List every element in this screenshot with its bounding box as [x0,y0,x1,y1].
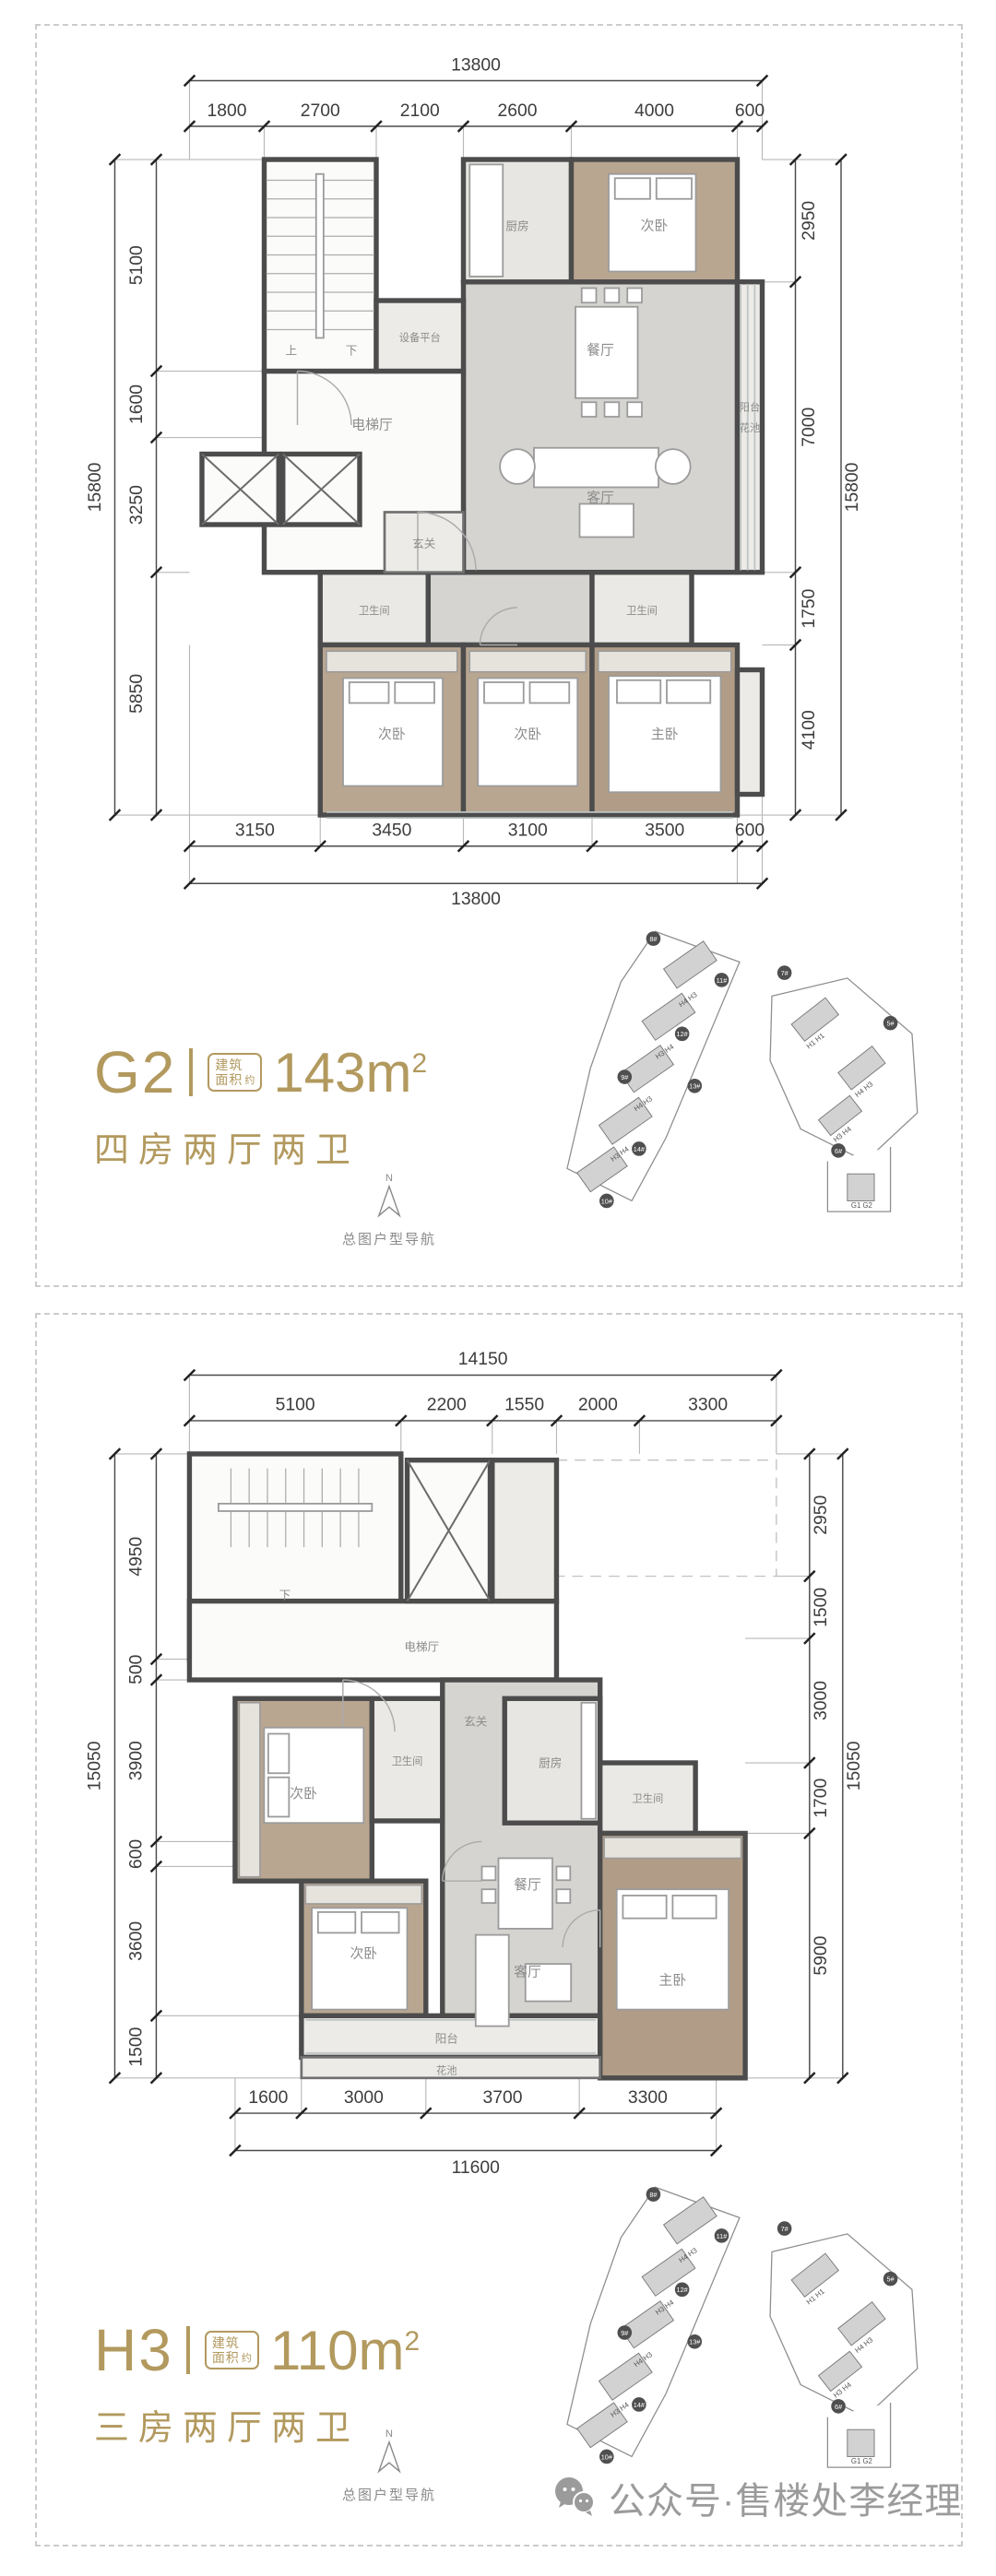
building-badge: 7# [781,969,789,977]
building-badge: 9# [621,1073,629,1081]
unit-code: H3 [94,2316,173,2384]
room-label-bath-right: 卫生间 [633,1792,664,1805]
title-divider [189,1048,193,1096]
building-badge: 7# [781,2225,789,2233]
dim-left-seg-5: 1500 [127,2027,147,2067]
room-label-elevator-hall: 电梯厅 [404,1641,439,1654]
room-label-bedroom-mid: 次卧 [514,727,541,742]
room-label-living: 客厅 [587,490,614,505]
building-badge: 13# [689,1082,701,1091]
dim-right-seg-0: 2950 [812,1495,831,1535]
site-plan-map: 8# 11# 7# 12# 9# 13# 5# 14# 10# 6# H4 H3… [531,922,944,1235]
area-badge-line1: 建筑 [212,2335,240,2350]
room-label-dining: 餐厅 [514,1877,541,1893]
dim-right-seg-1: 1500 [812,1588,831,1627]
dim-right-seg-2: 1750 [799,589,819,629]
dim-top-seg-5: 600 [735,100,765,121]
dim-right-seg-4: 5900 [812,1936,831,1976]
building-badge: 11# [717,2232,729,2240]
dim-bottom-seg-2: 3100 [508,821,548,841]
dim-right-total: 15050 [845,1742,864,1791]
room-label-living: 客厅 [514,1965,541,1980]
dim-right-seg-3: 4100 [799,710,819,750]
building-badge: 9# [621,2329,629,2337]
dim-right-seg-1: 7000 [799,408,819,447]
room-label-equipment: 设备平台 [399,331,441,344]
room-label-foyer: 玄关 [412,538,436,550]
title-divider [186,2326,190,2374]
dim-top-seg-3: 2600 [497,100,537,121]
north-compass-icon: N [369,1169,409,1223]
building-badge: 5# [887,2275,895,2284]
dim-left-total: 15800 [85,463,105,513]
dim-right-seg-3: 1700 [812,1778,831,1818]
compass-n-label: N [385,2428,393,2440]
dim-top-seg-3: 2000 [578,1396,618,1415]
area-badge-line2: 面积 [215,1072,243,1087]
room-label-bath-left: 卫生间 [392,1755,423,1767]
dim-left-seg-2: 3900 [127,1741,147,1780]
building-badge: 12# [677,2286,689,2294]
dim-top-seg-0: 5100 [276,1396,315,1415]
dim-right-seg-2: 3000 [812,1681,831,1720]
site-plan-map: 8# 11# 7# 12# 9# 13# 5# 14# 10# 6# H4 H3… [531,2178,944,2491]
room-label-foyer: 玄关 [464,1716,488,1729]
building-badge: 10# [601,1197,613,1205]
room-label-stair-down: 下 [279,1589,291,1601]
floorplan-drawing-h3: 5100 2200 1550 2000 3300 14150 1600 3000… [85,1346,887,2196]
room-label-stair-down: 下 [346,345,358,358]
building-badge: 14# [634,2401,646,2409]
building-badge: 6# [835,1147,843,1155]
sitemap-g2: N 总图户型导航 8# 11# 7# 12# 9# 13# [293,922,950,1256]
sitemap-caption: 总图户型导航 [325,1229,454,1248]
compass-n-label: N [385,1173,393,1184]
floorplan-panel-h3: 5100 2200 1550 2000 3300 14150 1600 3000… [35,1313,963,2546]
area-badge: 建筑 面积 约 [205,2331,259,2369]
dim-bottom-seg-3: 3500 [645,821,684,841]
room-label-bath-left: 卫生间 [359,604,390,617]
floorplan-panel-g2: 1800 2700 2100 2600 4000 600 13800 3150 … [35,24,963,1287]
dim-left-seg-1: 500 [127,1655,147,1684]
dim-bottom-seg-0: 1600 [248,2088,288,2108]
room-label-bath-right: 卫生间 [626,604,658,617]
dim-left-seg-3: 5850 [126,674,147,714]
dim-left-seg-1: 1600 [126,384,147,424]
room-label-stair-up: 上 [285,345,297,358]
area-badge-line1: 建筑 [215,1058,243,1072]
area-badge-line2: 面积 [212,2350,240,2365]
dim-bottom-seg-1: 3000 [344,2088,384,2108]
building-badge: 13# [689,2338,701,2346]
dim-left-seg-2: 3250 [126,485,147,525]
building-badge: 8# [649,2191,658,2199]
watermark-text: 公众号·售楼处李经理 [609,2471,962,2524]
north-compass-icon: N [369,2425,409,2478]
dim-top-seg-2: 1550 [504,1396,544,1415]
dim-top-seg-1: 2700 [301,100,340,121]
dim-top-seg-4: 4000 [634,100,674,121]
dim-bottom-seg-2: 3700 [482,2088,522,2108]
building-badge: 11# [717,976,729,985]
building-badge: 10# [601,2452,613,2461]
dim-bottom-seg-3: 3300 [628,2088,668,2108]
room-label-elevator-hall: 电梯厅 [351,418,393,433]
dim-left-seg-3: 600 [127,1839,147,1869]
dim-left-seg-0: 4950 [127,1537,147,1577]
dim-top-total: 13800 [451,54,501,75]
sitemap-caption: 总图户型导航 [325,2485,454,2504]
north-compass: N 总图户型导航 [325,1169,454,1248]
area-badge-suffix: 约 [242,2350,252,2365]
building-badge: 14# [634,1145,646,1153]
room-label-flower-bed: 花池 [436,2064,456,2076]
north-compass: N 总图户型导航 [325,2425,454,2504]
area-badge-suffix: 约 [244,1072,255,1087]
unit-code-label: G1 G2 [851,2457,872,2465]
sitemap-h3: N 总图户型导航 8# 11# 7# 12# 9# 13# [293,2178,950,2511]
dim-bottom-total: 13800 [451,889,501,909]
room-label-bedroom-top: 次卧 [290,1786,317,1802]
dim-bottom-seg-1: 3450 [372,821,411,841]
watermark: 公众号·售楼处李经理 [550,2471,962,2524]
room-label-bedroom-mid: 次卧 [350,1945,377,1961]
building-badge: 8# [649,935,658,943]
dim-bottom-seg-4: 600 [735,821,765,841]
building-badge: 6# [835,2403,843,2411]
unit-code-label: G1 G2 [851,1201,872,1210]
dim-left-seg-4: 3600 [127,1921,147,1961]
room-label-kitchen: 厨房 [539,1756,562,1770]
room-label-balcony: 阳台 [435,2033,458,2046]
dim-top-seg-2: 2100 [400,100,440,121]
dim-right-seg-0: 2950 [799,201,819,241]
room-label-master: 主卧 [659,1973,687,1989]
room-label-bedroom-top: 次卧 [641,219,669,234]
room-label-balcony: 阳台 [740,400,761,413]
dim-top-seg-1: 2200 [427,1396,467,1415]
dim-top-seg-4: 3300 [688,1396,728,1415]
area-badge: 建筑 面积 约 [207,1053,262,1092]
dim-left-seg-0: 5100 [126,245,147,285]
dim-bottom-total: 11600 [452,2158,500,2178]
room-label-kitchen: 厨房 [505,219,528,233]
dim-left-total: 15050 [86,1742,105,1791]
building-badge: 5# [887,1020,895,1028]
dim-top-seg-0: 1800 [207,100,246,121]
room-label-flower-bed: 花池 [740,422,761,434]
dim-top-total: 14150 [458,1350,508,1369]
wechat-icon [550,2473,599,2523]
unit-code: G2 [94,1038,176,1106]
dim-bottom-seg-0: 3150 [235,821,275,841]
room-label-master: 主卧 [651,727,679,742]
room-label-bedroom-left: 次卧 [378,727,406,742]
floorplan-drawing-g2: 1800 2700 2100 2600 4000 600 13800 3150 … [85,52,883,923]
dim-right-total: 15800 [842,463,862,513]
room-label-dining: 餐厅 [587,343,614,359]
building-badge: 12# [677,1030,689,1038]
